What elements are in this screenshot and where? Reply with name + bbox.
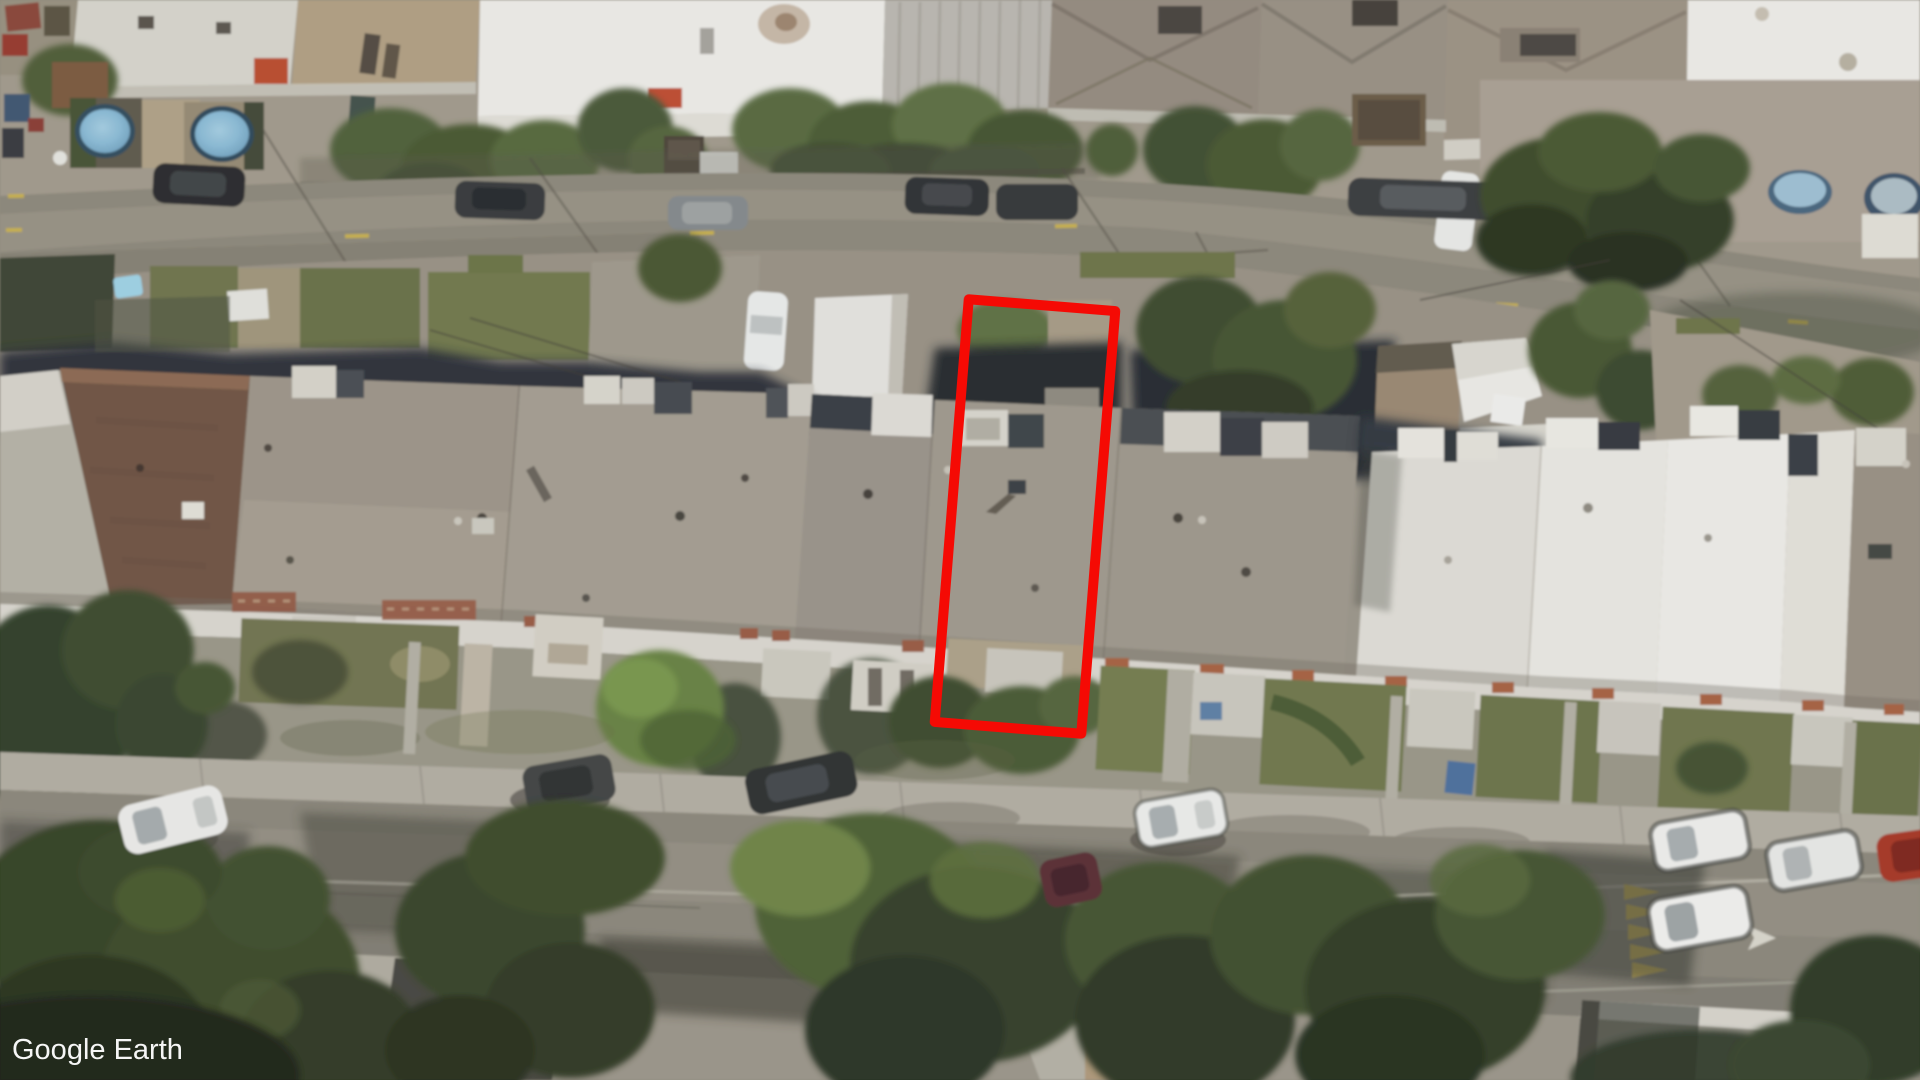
svg-text:Google Earth: Google Earth bbox=[12, 1034, 183, 1066]
